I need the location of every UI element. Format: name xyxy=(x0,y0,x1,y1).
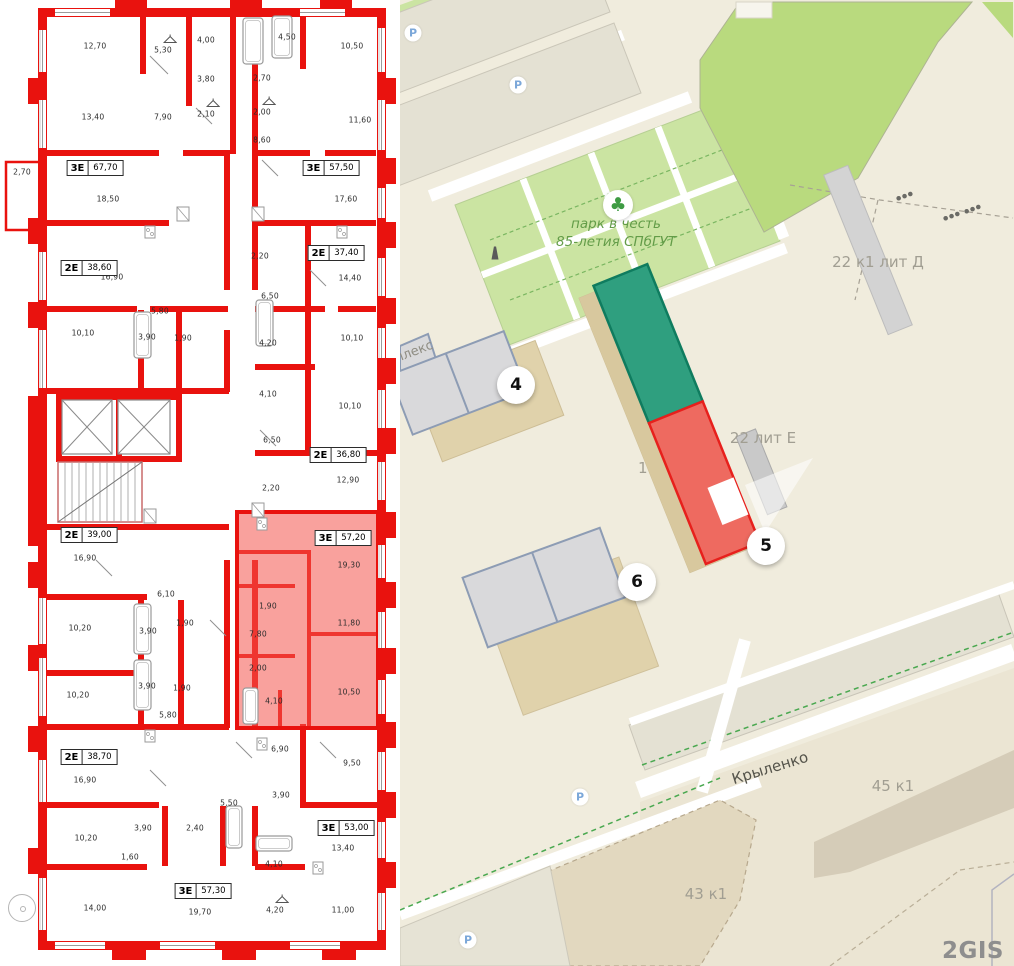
unit-badge[interactable]: 3Е57,50 xyxy=(303,160,360,176)
room-area-label: 2,40 xyxy=(186,824,204,833)
unit-area: 57,50 xyxy=(324,161,358,175)
map-watermark: 2GIS xyxy=(942,938,1004,964)
room-area-label: 11,00 xyxy=(332,906,355,915)
room-area-label: 3,90 xyxy=(139,627,157,636)
unit-badge[interactable]: 3Е57,30 xyxy=(175,883,232,899)
room-area-label: 1,90 xyxy=(174,334,192,343)
room-area-label: 14,40 xyxy=(339,274,362,283)
unit-area: 38,60 xyxy=(82,261,116,275)
room-area-label: 1,90 xyxy=(259,602,277,611)
room-area-label: 19,70 xyxy=(189,908,212,917)
map-marker-4[interactable]: 4 xyxy=(497,366,535,404)
unit-type: 2Е xyxy=(311,448,332,462)
room-area-label: 19,30 xyxy=(338,561,361,570)
floorplan-labels-layer: 12,705,304,004,5010,5013,407,903,802,702… xyxy=(0,0,400,966)
map-markers-layer: 456 xyxy=(400,0,1014,966)
room-area-label: 2,70 xyxy=(13,168,31,177)
room-area-label: 16,90 xyxy=(74,776,97,785)
unit-type: 3Е xyxy=(316,531,337,545)
unit-type: 2Е xyxy=(62,750,83,764)
room-area-label: 7,90 xyxy=(154,113,172,122)
room-area-label: 7,80 xyxy=(249,630,267,639)
room-area-label: 2,70 xyxy=(253,74,271,83)
room-area-label: 11,80 xyxy=(338,619,361,628)
unit-badge[interactable]: 2Е37,40 xyxy=(308,245,365,261)
room-area-label: 12,90 xyxy=(337,476,360,485)
unit-type: 3Е xyxy=(319,821,340,835)
room-area-label: 18,50 xyxy=(97,195,120,204)
room-area-label: 13,40 xyxy=(332,844,355,853)
room-area-label: 3,90 xyxy=(134,824,152,833)
unit-area: 39,00 xyxy=(82,528,116,542)
room-area-label: 4,10 xyxy=(265,860,283,869)
room-area-label: 6,90 xyxy=(271,745,289,754)
unit-area: 36,80 xyxy=(331,448,365,462)
room-area-label: 3,90 xyxy=(138,682,156,691)
unit-type: 3Е xyxy=(304,161,325,175)
unit-badge[interactable]: 3Е67,70 xyxy=(67,160,124,176)
room-area-label: 8,60 xyxy=(253,136,271,145)
room-area-label: 3,80 xyxy=(197,75,215,84)
room-area-label: 4,10 xyxy=(259,390,277,399)
unit-area: 38,70 xyxy=(82,750,116,764)
unit-area: 67,70 xyxy=(88,161,122,175)
room-area-label: 2,00 xyxy=(253,108,271,117)
room-area-label: 4,50 xyxy=(278,33,296,42)
unit-badge[interactable]: 2Е36,80 xyxy=(310,447,367,463)
room-area-label: 5,80 xyxy=(151,307,169,316)
unit-type: 2Е xyxy=(62,528,83,542)
room-area-label: 12,70 xyxy=(84,42,107,51)
room-area-label: 3,90 xyxy=(272,791,290,800)
unit-type: 2Е xyxy=(62,261,83,275)
room-area-label: 5,80 xyxy=(159,711,177,720)
room-area-label: 1,90 xyxy=(173,684,191,693)
room-area-label: 14,00 xyxy=(84,904,107,913)
room-area-label: 2,00 xyxy=(249,664,267,673)
room-area-label: 9,50 xyxy=(343,759,361,768)
room-area-label: 6,10 xyxy=(157,590,175,599)
room-area-label: 10,10 xyxy=(72,329,95,338)
map-marker-6[interactable]: 6 xyxy=(618,563,656,601)
room-area-label: 1,60 xyxy=(121,853,139,862)
unit-badge[interactable]: 3Е53,00 xyxy=(318,820,375,836)
room-area-label: 11,60 xyxy=(349,116,372,125)
unit-type: 3Е xyxy=(176,884,197,898)
room-area-label: 4,10 xyxy=(265,697,283,706)
room-area-label: 1,90 xyxy=(176,619,194,628)
room-area-label: 10,10 xyxy=(341,334,364,343)
unit-area: 37,40 xyxy=(329,246,363,260)
unit-type: 2Е xyxy=(309,246,330,260)
room-area-label: 10,20 xyxy=(75,834,98,843)
room-area-label: 5,30 xyxy=(154,46,172,55)
unit-badge-selected[interactable]: 3Е57,20 xyxy=(315,530,372,546)
room-area-label: 10,50 xyxy=(338,688,361,697)
unit-badge[interactable]: 2Е38,70 xyxy=(61,749,118,765)
map-marker-5[interactable]: 5 xyxy=(747,527,785,565)
room-area-label: 4,20 xyxy=(259,339,277,348)
unit-type: 3Е xyxy=(68,161,89,175)
room-area-label: 10,10 xyxy=(339,402,362,411)
map-panel[interactable]: 1-я плекс22 к1 лит Д22 лит Е45 к143 к1Кр… xyxy=(400,0,1014,966)
room-area-label: 3,90 xyxy=(138,333,156,342)
floorplan-panel: 12,705,304,004,5010,5013,407,903,802,702… xyxy=(0,0,400,966)
room-area-label: 6,50 xyxy=(261,292,279,301)
room-area-label: 16,90 xyxy=(74,554,97,563)
room-area-label: 10,20 xyxy=(69,624,92,633)
room-area-label: 2,20 xyxy=(262,484,280,493)
unit-area: 53,00 xyxy=(339,821,373,835)
screenshot-root: 12,705,304,004,5010,5013,407,903,802,702… xyxy=(0,0,1014,966)
unit-badge[interactable]: 2Е38,60 xyxy=(61,260,118,276)
unit-area: 57,20 xyxy=(336,531,370,545)
room-area-label: 2,10 xyxy=(197,110,215,119)
room-area-label: 17,60 xyxy=(335,195,358,204)
room-area-label: 13,40 xyxy=(82,113,105,122)
unit-badge[interactable]: 2Е39,00 xyxy=(61,527,118,543)
room-area-label: 10,50 xyxy=(341,42,364,51)
room-area-label: 4,00 xyxy=(197,36,215,45)
room-area-label: 2,20 xyxy=(251,252,269,261)
room-area-label: 5,50 xyxy=(220,799,238,808)
unit-area: 57,30 xyxy=(196,884,230,898)
room-area-label: 10,20 xyxy=(67,691,90,700)
room-area-label: 4,20 xyxy=(266,906,284,915)
room-area-label: 6,50 xyxy=(263,436,281,445)
